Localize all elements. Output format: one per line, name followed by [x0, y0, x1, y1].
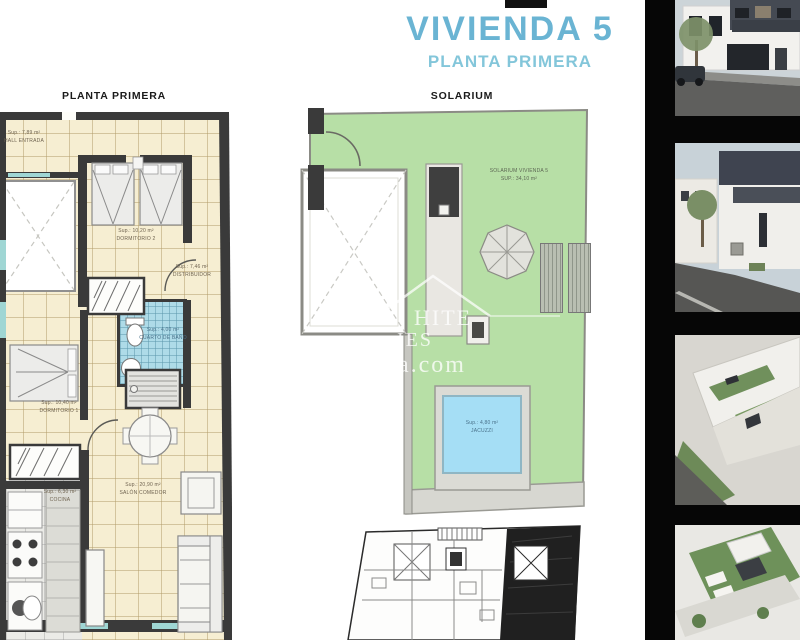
- photo-thumbnail-street-front[interactable]: [675, 0, 800, 116]
- shower: [126, 370, 180, 408]
- bano-label: Sup.: 4,00 m²CUARTO DE BAÑO: [138, 326, 188, 342]
- stove: [8, 532, 42, 578]
- page-title: VIVIENDA 5: [400, 10, 620, 49]
- hall-label: Sup.: 7,89 m²HALL ENTRADA: [2, 129, 46, 145]
- kitchen-counter: [46, 490, 80, 632]
- photo-thumbnail-aerial-terraces[interactable]: [675, 335, 800, 505]
- key-plan-stairs: [438, 528, 482, 540]
- aerial-terraces-render: [675, 335, 800, 505]
- sideboard: [86, 550, 104, 626]
- key-plan-void-right: [514, 546, 548, 580]
- twin-beds: [92, 157, 182, 225]
- floor-plan-title: PLANTA PRIMERA: [0, 90, 228, 102]
- double-bed: [10, 345, 78, 401]
- salon-label: Sup.: 20,90 m²SALÓN COMEDOR: [116, 481, 170, 497]
- floor-plan-drawing: [0, 112, 232, 640]
- street-side-render: [675, 143, 800, 312]
- aerial-rooftop-render: [675, 525, 800, 640]
- watermark-roof-icon: [355, 265, 595, 325]
- sofa: [178, 536, 222, 632]
- pool-label: Sup.: 4,80 m²JACUZZI: [446, 419, 518, 435]
- closet-wardrobe-2: [10, 445, 80, 479]
- cropped-logo-bar: [505, 0, 547, 8]
- armchair: [181, 472, 221, 514]
- highlighted-unit-zone: [500, 526, 580, 640]
- page-subtitle: PLANTA PRIMERA: [400, 52, 620, 72]
- kitchen-sink: [8, 582, 42, 630]
- listing-plan-sheet: VIVIENDA 5 PLANTA PRIMERA PLANTA PRIMERA…: [0, 0, 800, 640]
- key-plan-elevator: [446, 548, 466, 570]
- closet-wardrobe-1: [88, 278, 144, 314]
- photo-thumbnail-aerial-rooftop[interactable]: [675, 525, 800, 640]
- fridge: [8, 492, 42, 528]
- watermark-text-1: HITE: [414, 305, 472, 331]
- distribuidor-label: Sup.: 7,46 m²DISTRIBUIDOR: [166, 263, 218, 279]
- dining-table: [123, 408, 177, 464]
- watermark-text-2: IES: [397, 329, 433, 352]
- street-front-render: [675, 0, 800, 116]
- dormitorio2-label: Sup.: 10,20 m²DORMITORIO 2: [96, 227, 176, 243]
- dormitorio1-label: Sup.: 10,40 m²DORMITORIO 1: [26, 399, 92, 415]
- cocina-label: Sup.: 6,30 m²COCINA: [40, 488, 80, 504]
- watermark-text-3: da.com: [384, 352, 466, 379]
- solarium-plan-title: SOLARIUM: [316, 90, 608, 102]
- solarium-label: SOLARIUM VIVIENDA 5SUP.: 34,10 m²: [477, 167, 561, 183]
- photo-thumbnail-street-side[interactable]: [675, 143, 800, 312]
- building-key-plan: [342, 522, 600, 640]
